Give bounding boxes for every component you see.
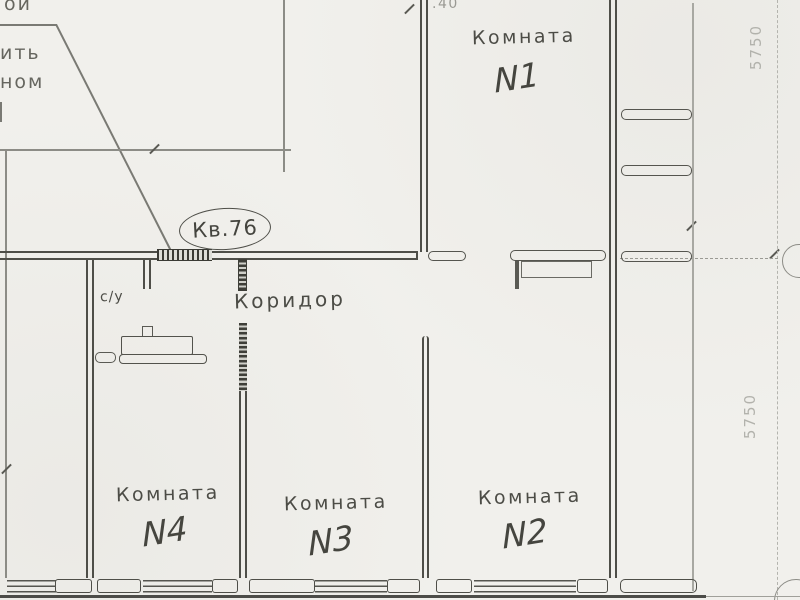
window-1 [7,580,56,593]
wall-pier [387,579,420,593]
wall-segment-door-jamb [428,251,466,261]
axis-circle-right [782,244,800,278]
room-3-number: N3 [307,517,354,563]
room-3-label: Комната [284,491,388,516]
note-box-line [0,24,57,26]
dimension-line-right [777,0,778,600]
dimension-tick [404,4,415,15]
wall-pier [97,579,141,593]
bathroom-fixture [95,352,116,363]
wall-pier [436,579,472,593]
room-2-label: Комната [478,485,582,510]
note-text-line-1: ой [4,0,32,15]
wall-stub-bathroom-door [143,259,151,289]
closet-top-bar [510,250,606,261]
bathtub-rim [119,354,207,364]
wall-pier [577,579,608,593]
wall-pier [55,579,92,593]
note-text-line-2: ить [0,42,41,64]
room-1-label: Комната [472,25,576,50]
apartment-number-ellipse: Кв.76 [178,206,272,253]
room-4-number: N4 [141,508,188,554]
window-3 [315,580,387,593]
dimension-5750-bottom: 5750 [741,386,759,446]
wall-bottom-outer-line [0,595,706,598]
extension-line-vertical [283,0,285,172]
wall-stub-hatched [238,259,247,291]
wall-bottom-outer-line-faint [706,596,800,598]
closet-side-stub [515,261,519,289]
entrance-door-hatch [157,249,212,261]
wall-pier [212,579,238,593]
balcony-rail-bar [621,251,692,262]
window-4 [474,580,576,593]
wall-room1-west [420,0,428,252]
note-text-line-3: ном [0,71,44,93]
bathtub [121,336,193,355]
corridor-label: Коридор [234,287,346,314]
dimension-top-partial: .40 [432,0,459,12]
closet-body [521,261,592,278]
balcony-edge-line [692,3,694,591]
window-2 [143,580,212,593]
apartment-number-label: Кв.76 [192,215,259,242]
wall-pier [620,579,697,593]
dimension-line-horizontal [0,149,291,151]
room-4-label: Комната [116,482,220,507]
leader-line [56,24,173,252]
partition-hatch-overlay [239,323,247,391]
partition-room3-room2 [422,336,429,578]
floor-plan: ой ить ном 5750 5750 .40 [0,0,800,600]
dimension-5750-top: 5750 [747,17,765,77]
balcony-rail-bar [621,109,692,120]
balcony-rail-bar [621,165,692,176]
dimension-tick [1,464,12,475]
note-edge-mark [0,102,2,122]
wall-pier [249,579,315,593]
wall-right [609,0,617,578]
room-1-number: N1 [493,54,540,100]
bathroom-label: с/у [100,289,124,306]
wall-left-interior [86,259,94,578]
room-2-number: N2 [501,510,548,556]
left-boundary-line [5,150,7,578]
